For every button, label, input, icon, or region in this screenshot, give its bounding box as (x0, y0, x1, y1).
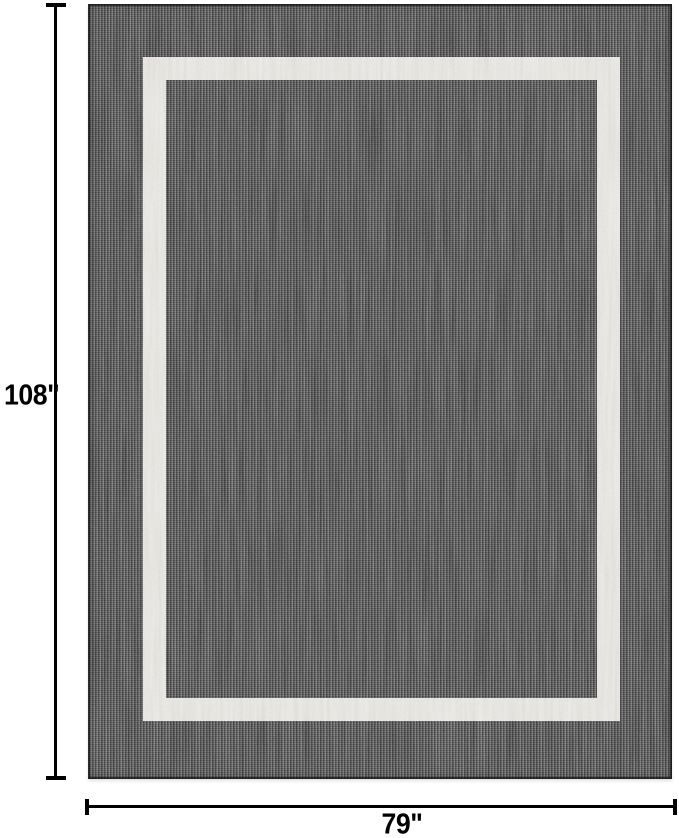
rug-image (88, 4, 672, 779)
height-dimension-label: 108" (4, 382, 50, 411)
width-dimension-label: 79" (382, 811, 423, 838)
product-dimension-image: 108" 79" (0, 0, 679, 838)
width-dimension-cap-right-icon (673, 799, 677, 815)
rug-border-band (143, 57, 620, 721)
height-dimension-cap-bottom-icon (46, 776, 66, 780)
